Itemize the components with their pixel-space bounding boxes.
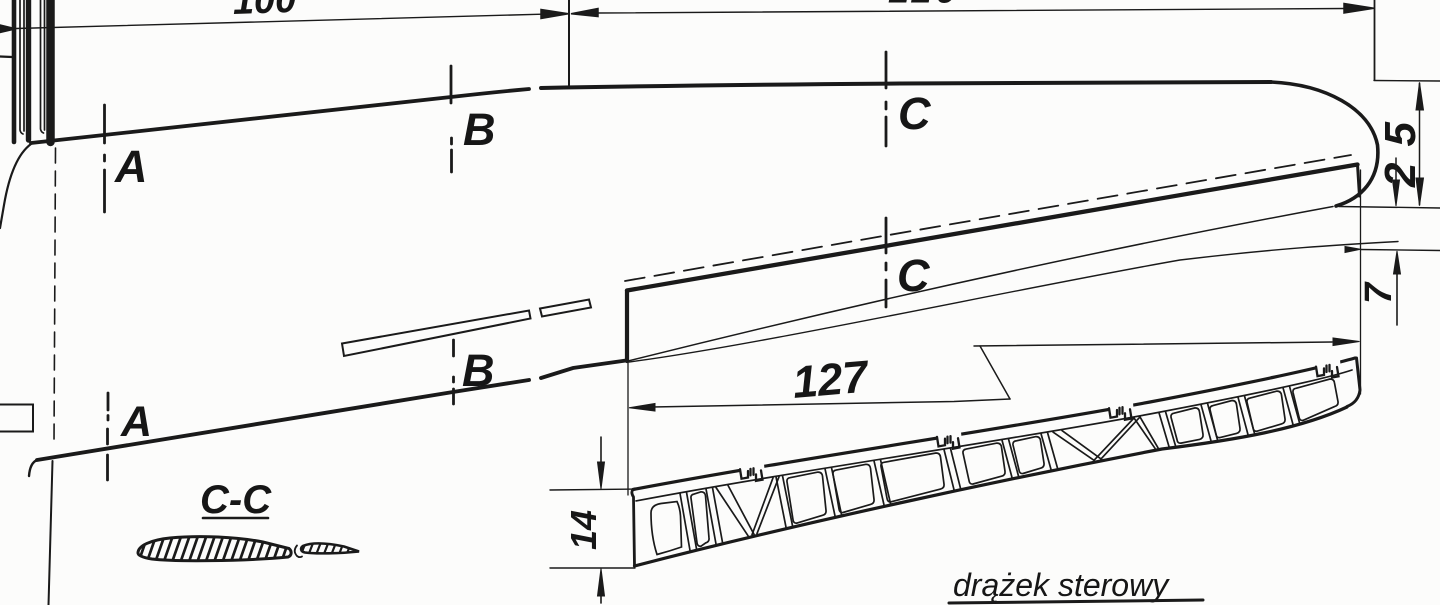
svg-text:C: C xyxy=(898,88,932,139)
svg-text:drążek sterowy: drążek sterowy xyxy=(953,567,1170,603)
svg-text:100: 100 xyxy=(232,0,297,23)
svg-text:A: A xyxy=(114,141,148,192)
svg-text:7: 7 xyxy=(1358,281,1400,304)
svg-text:127: 127 xyxy=(790,350,871,408)
svg-text:A: A xyxy=(120,398,152,446)
svg-text:B: B xyxy=(462,345,495,396)
svg-text:25: 25 xyxy=(1376,106,1425,188)
svg-text:110: 110 xyxy=(888,0,961,12)
svg-text:C-C: C-C xyxy=(200,478,272,522)
svg-text:B: B xyxy=(463,104,496,155)
svg-text:C: C xyxy=(897,250,931,301)
svg-text:14: 14 xyxy=(563,510,604,550)
